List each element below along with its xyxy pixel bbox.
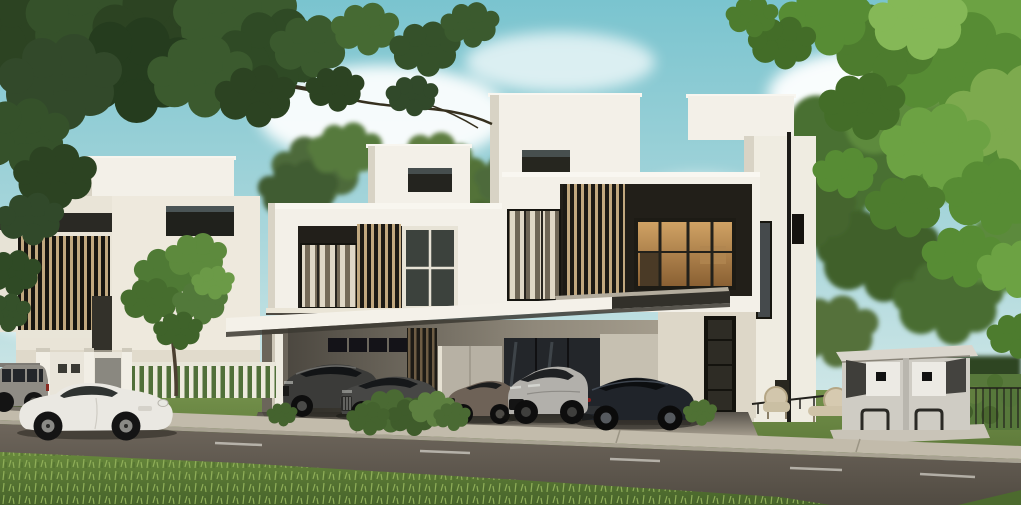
architectural-rendering: Photorealistic 3D exterior rendering of … [0, 0, 1021, 505]
entrance-door [704, 316, 736, 414]
left-unit-louver-screen [357, 224, 401, 310]
utility-cabinets [830, 345, 990, 445]
left-unit-curtain-window [301, 244, 357, 308]
left-villa-roof-box [84, 158, 234, 198]
left-unit-framed-window [402, 226, 458, 310]
right-unit-curtain-window [508, 210, 560, 300]
downpipe [787, 132, 791, 422]
lit-interior-window [634, 218, 736, 290]
white-picket-fence [132, 362, 276, 398]
right-unit-louver-screen [563, 184, 625, 296]
rooftop-box-right [688, 96, 794, 140]
